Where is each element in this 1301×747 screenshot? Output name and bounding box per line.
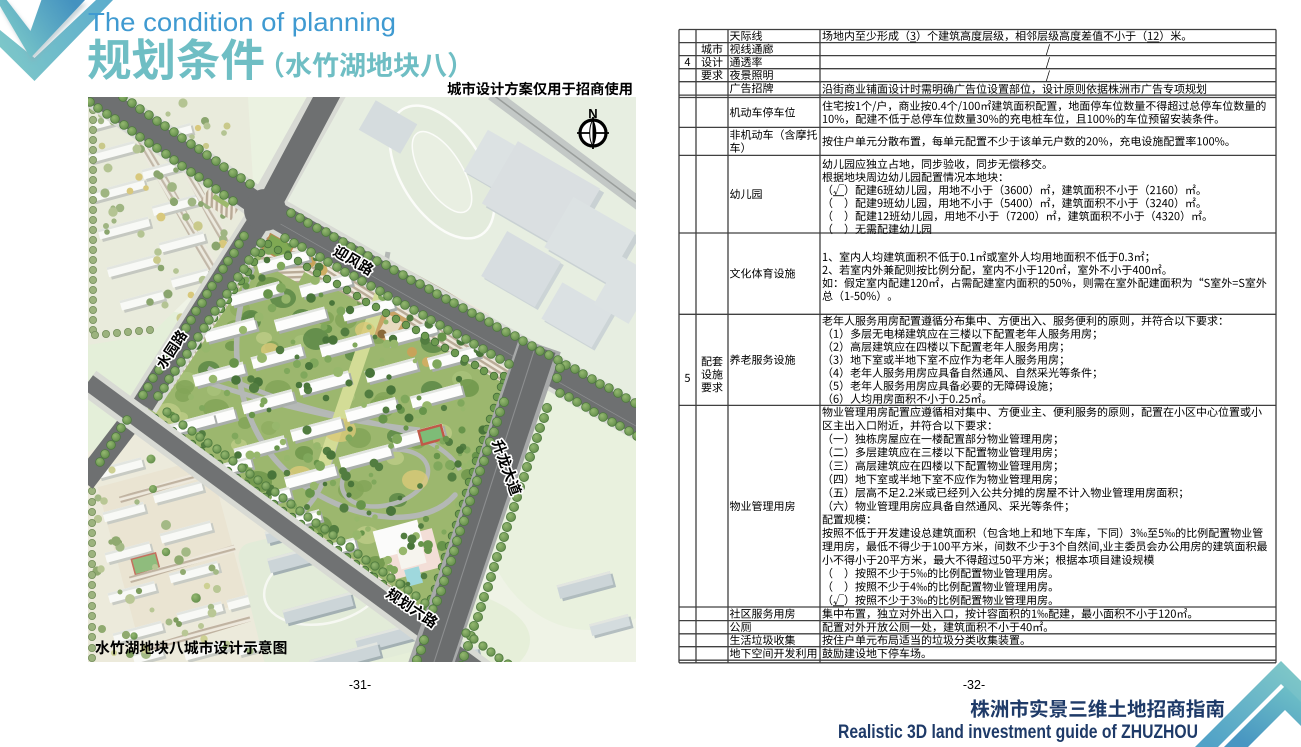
svg-text:N: N <box>588 106 597 121</box>
svg-text:The condition of planning: The condition of planning <box>88 7 396 37</box>
svg-text:Realistic 3D land investment g: Realistic 3D land investment guide of ZH… <box>838 722 1198 743</box>
svg-text:-31-: -31- <box>349 678 371 692</box>
svg-text:-32-: -32- <box>963 678 985 692</box>
